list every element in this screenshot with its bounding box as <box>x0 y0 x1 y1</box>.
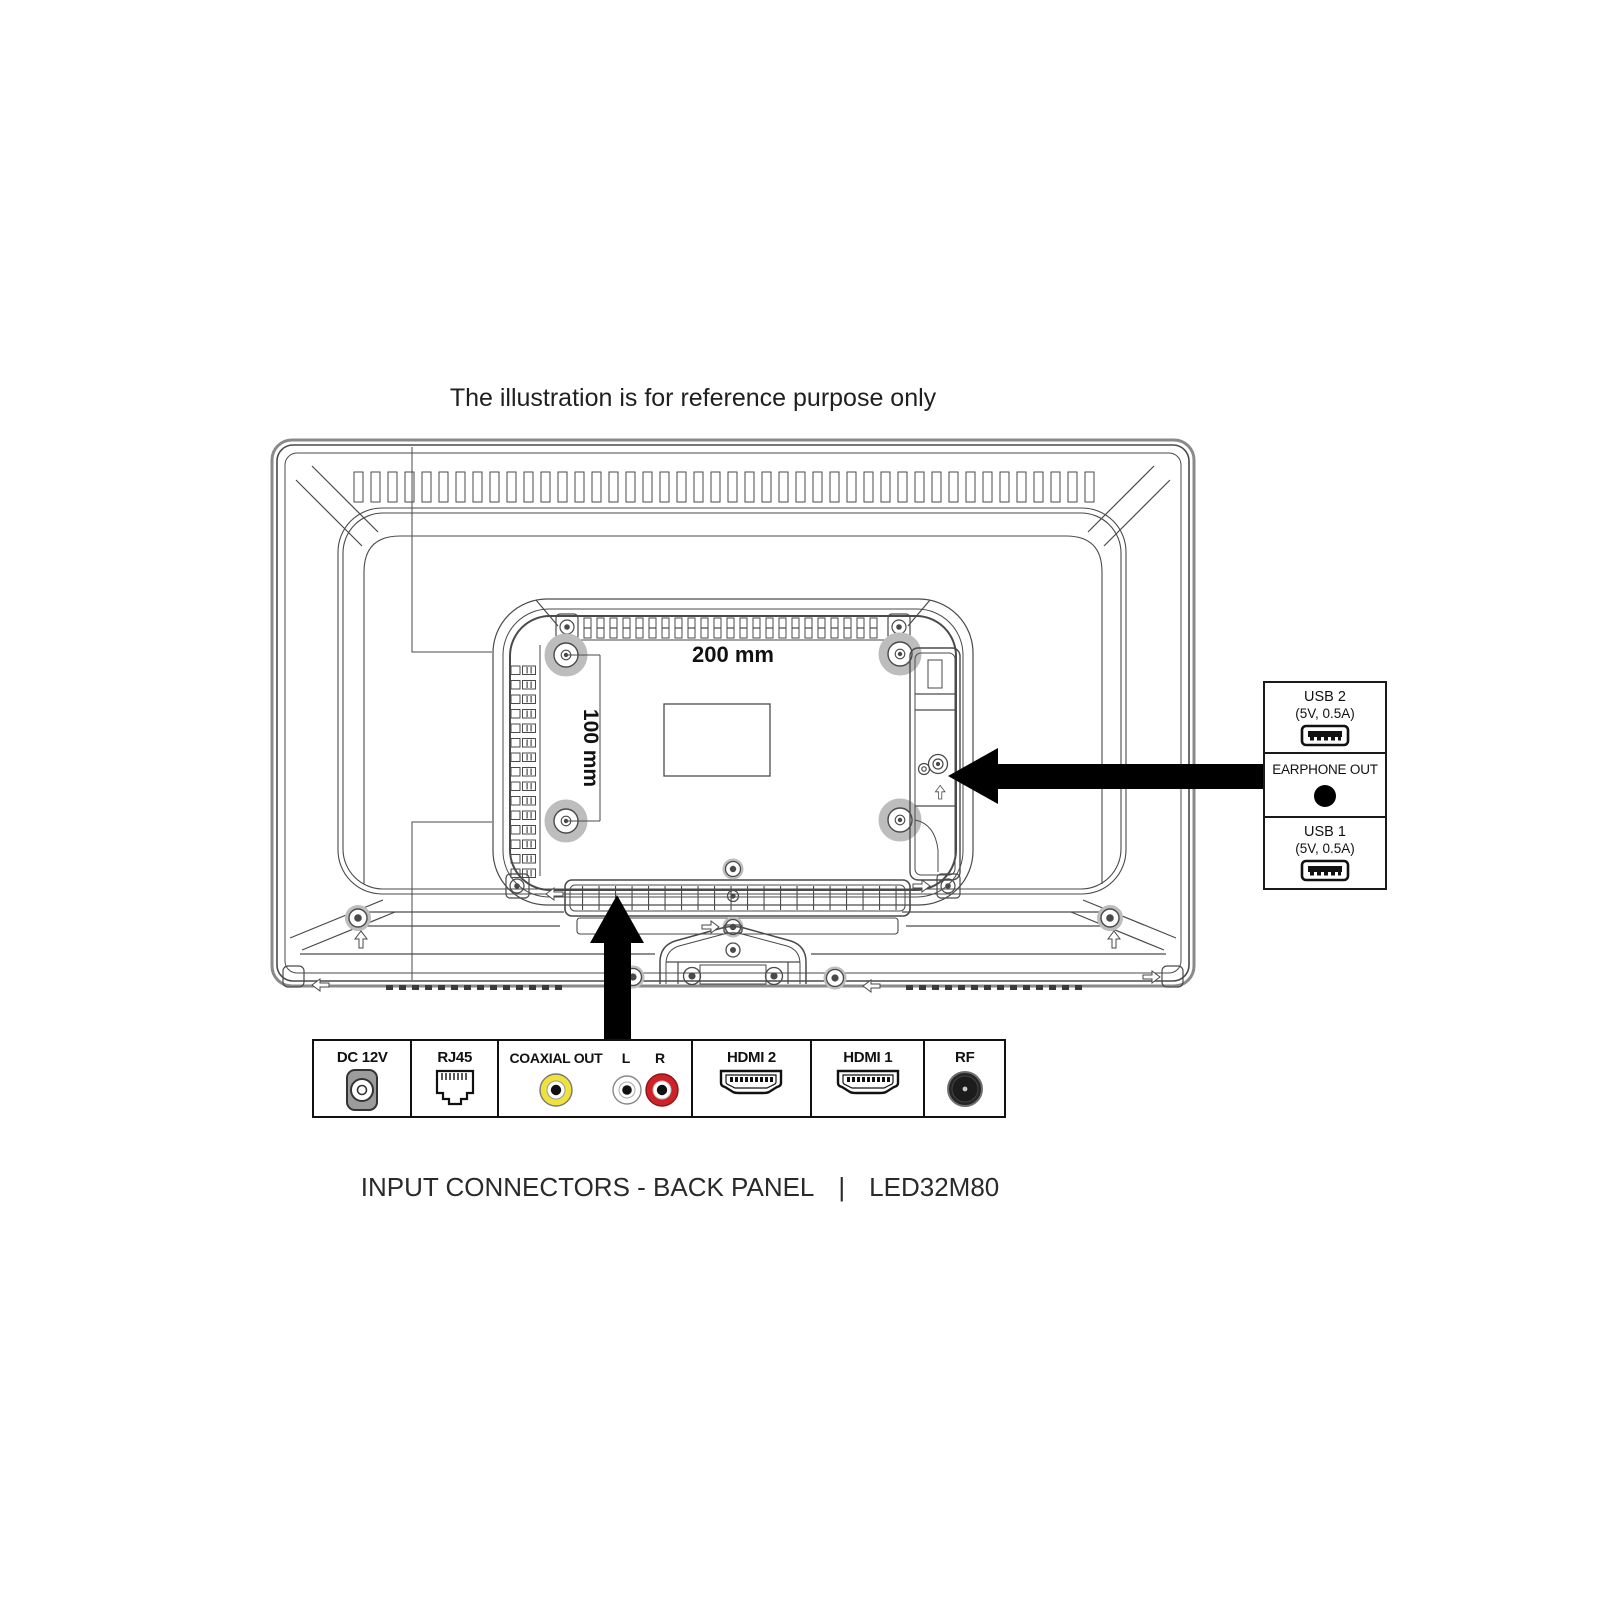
usb1-label: USB 1 <box>1265 824 1385 841</box>
rf-antenna-icon <box>925 1068 1004 1110</box>
bezel-line-1 <box>338 508 1126 894</box>
usb-port-icon <box>1265 859 1385 887</box>
vesa-screw-top-right <box>883 637 917 671</box>
rca-left-icon <box>611 1074 643 1106</box>
center-opening <box>664 704 770 776</box>
caption-separator: | <box>838 1172 845 1202</box>
dimension-labels: 200 mm 100 mm <box>579 642 774 787</box>
bezel-line-2 <box>343 513 1121 889</box>
vesa-screws <box>549 637 917 838</box>
tv-outer-edge <box>272 440 1194 986</box>
up-arrow-icon <box>935 785 945 799</box>
rj45-cell: RJ45 <box>412 1041 499 1116</box>
caption: INPUT CONNECTORS - BACK PANEL|LED32M80 <box>0 1172 1360 1203</box>
rj45-label: RJ45 <box>412 1050 497 1066</box>
right-arrow-icon <box>702 921 719 933</box>
earphone-section: EARPHONE OUT <box>1265 754 1385 818</box>
rca-coaxial-icon <box>538 1072 574 1108</box>
up-arrow-icon <box>355 931 367 948</box>
dc-power-cell: DC 12V <box>314 1041 412 1116</box>
dimension-200mm-label: 200 mm <box>692 642 774 667</box>
leader-line-top <box>412 447 492 652</box>
hdmi2-label: HDMI 2 <box>693 1050 810 1066</box>
side-usb-hole <box>919 764 930 775</box>
hdmi2-cell: HDMI 2 <box>693 1041 812 1116</box>
rf-cell: RF <box>925 1041 1004 1116</box>
tv-outline-group <box>272 440 1194 992</box>
side-connectors-arrow <box>948 748 1264 804</box>
usb2-label: USB 2 <box>1265 689 1385 706</box>
earphone-label: EARPHONE OUT <box>1265 761 1385 778</box>
side-connector-recess <box>910 648 960 880</box>
left-vent-column <box>511 666 536 878</box>
usb2-section: USB 2 (5V, 0.5A) <box>1265 683 1385 754</box>
tv-frame-outer <box>277 445 1189 981</box>
coaxial-out-label: COAXIAL OUT <box>501 1050 611 1066</box>
hdmi1-cell: HDMI 1 <box>812 1041 925 1116</box>
caption-text: INPUT CONNECTORS - BACK PANEL <box>361 1172 815 1202</box>
hdmi1-label: HDMI 1 <box>812 1050 923 1066</box>
hdmi-port-icon <box>812 1068 923 1096</box>
hdmi-port-icon <box>693 1068 810 1096</box>
dc-power-label: DC 12V <box>314 1050 410 1066</box>
usb2-spec: (5V, 0.5A) <box>1265 706 1385 722</box>
audio-left-label: L <box>616 1050 636 1066</box>
usb1-spec: (5V, 0.5A) <box>1265 841 1385 857</box>
leader-line-bottom <box>412 822 492 980</box>
cavity-slot-band <box>556 614 910 640</box>
rca-right-icon <box>644 1072 680 1108</box>
usb1-section: USB 1 (5V, 0.5A) <box>1265 818 1385 887</box>
page: The illustration is for reference purpos… <box>0 0 1600 1600</box>
bezel-line-3 <box>364 536 1102 884</box>
dimension-100mm-label: 100 mm <box>579 709 602 787</box>
audio-right-label: R <box>650 1050 670 1066</box>
ethernet-port-icon <box>412 1068 497 1110</box>
dc-power-jack-icon <box>314 1068 410 1114</box>
top-vent-slots <box>354 472 1094 502</box>
vesa-screw-bottom-right <box>883 803 917 837</box>
usb-port-icon <box>1265 724 1385 753</box>
side-connector-panel: USB 2 (5V, 0.5A) EARPHONE OUT USB 1 (5V,… <box>1263 681 1387 890</box>
rf-label: RF <box>925 1050 1004 1066</box>
earphone-jack-icon <box>1314 785 1336 807</box>
bottom-connector-panel: DC 12V RJ45 <box>312 1039 1006 1118</box>
up-arrow-icon <box>1108 931 1120 948</box>
av-cell: COAXIAL OUT L R <box>499 1041 693 1116</box>
caption-model: LED32M80 <box>869 1172 999 1202</box>
